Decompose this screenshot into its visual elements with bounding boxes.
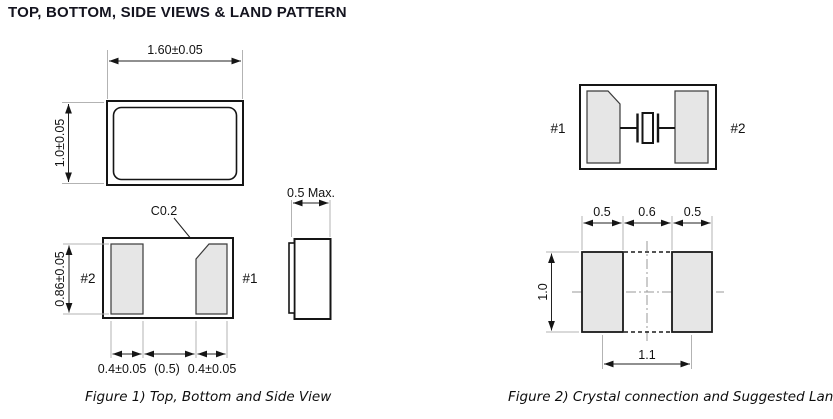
figure1-side-view: 0.5 Max. — [287, 186, 335, 319]
pad-2 — [675, 91, 708, 163]
land-pad-left-width-dimension: 0.5 — [593, 205, 610, 219]
pad-2-label: #2 — [80, 271, 95, 286]
pad-1-label: #1 — [550, 121, 565, 136]
pad-width-left-dimension: 0.4±0.05 — [98, 362, 147, 376]
figure1-top-view: 1.60±0.05 1.0±0.05 — [53, 43, 243, 185]
pad-width-right-dimension: 0.4±0.05 — [188, 362, 237, 376]
pad-1-bottom-chamfered — [196, 244, 227, 314]
pad-1-chamfered — [587, 91, 620, 163]
figure2-crystal-connection: #1 #2 — [550, 85, 745, 169]
land-pad-height-dimension: 1.0 — [536, 283, 550, 300]
figure1-caption: Figure 1) Top, Bottom and Side View — [85, 389, 332, 405]
land-pad-left — [582, 252, 623, 332]
pad-gap-dimension: (0.5) — [154, 362, 180, 376]
pad-2-bottom — [111, 244, 143, 314]
package-drawing: 1.60±0.05 1.0±0.05 C0.2 #2 #1 0.86±0.05 — [0, 0, 833, 419]
package-side-outline — [295, 239, 331, 319]
pad-2-label: #2 — [730, 121, 745, 136]
figure1-bottom-view: C0.2 #2 #1 0.86±0.05 0.4±0.05 (0.5) 0.4±… — [53, 204, 258, 376]
land-pad-right — [672, 252, 712, 332]
figure2-land-pattern: 0.5 0.6 0.5 1.0 1.1 — [536, 205, 724, 369]
package-lid-outline — [114, 108, 237, 180]
land-pad-right-width-dimension: 0.5 — [684, 205, 701, 219]
thickness-dimension: 0.5 Max. — [287, 186, 335, 200]
top-view-height-dimension: 1.0±0.05 — [53, 119, 67, 168]
figure2-caption: Figure 2) Crystal connection and Suggest… — [508, 389, 833, 405]
side-terminal-outline — [289, 243, 295, 313]
chamfer-callout-label: C0.2 — [151, 204, 177, 218]
center-spacing-dimension: 1.1 — [638, 348, 655, 362]
crystal-symbol-box — [643, 113, 654, 143]
land-gap-dimension: 0.6 — [638, 205, 655, 219]
pad-1-label: #1 — [242, 271, 257, 286]
datasheet-drawing-page: TOP, BOTTOM, SIDE VIEWS & LAND PATTERN 1… — [0, 0, 833, 419]
pad-height-dimension: 0.86±0.05 — [53, 251, 67, 307]
top-view-width-dimension: 1.60±0.05 — [147, 43, 203, 57]
